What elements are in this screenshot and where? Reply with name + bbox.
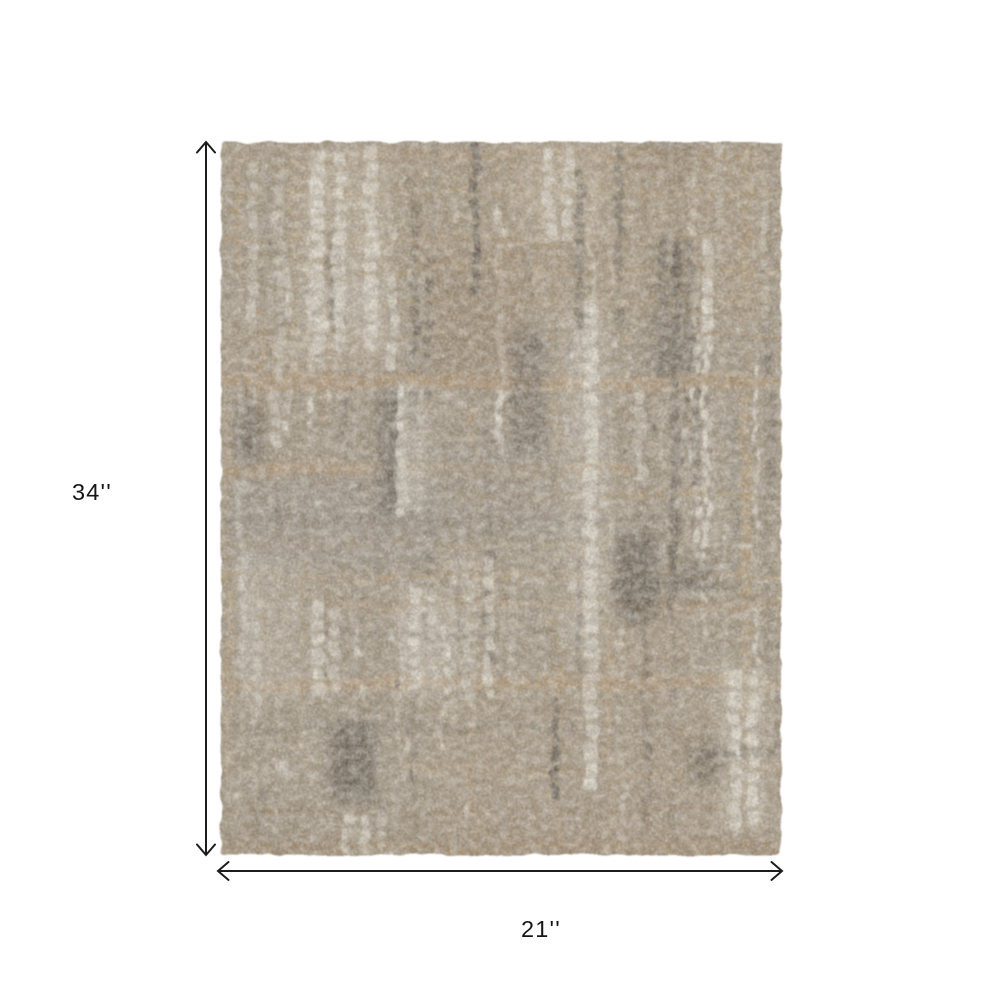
svg-text:34'': 34'' [72, 479, 112, 505]
svg-text:21'': 21'' [521, 916, 561, 942]
